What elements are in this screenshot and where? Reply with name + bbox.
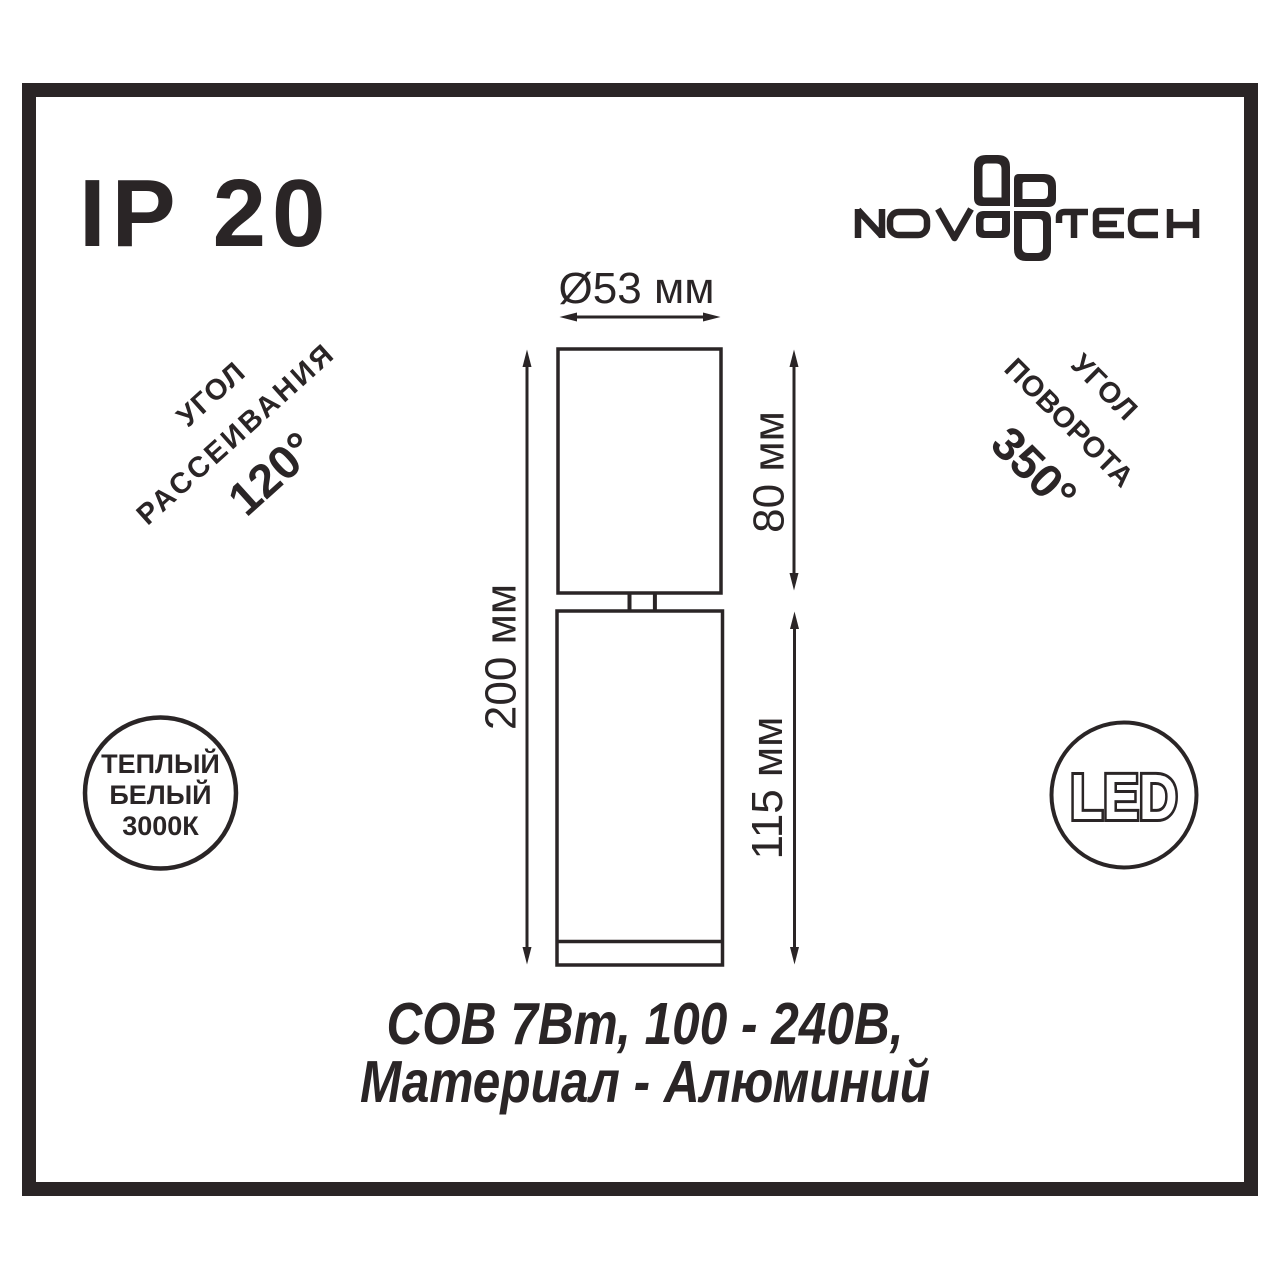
- svg-text:80 мм: 80 мм: [745, 411, 794, 533]
- svg-text:115 мм: 115 мм: [743, 717, 792, 860]
- svg-text:IP 20: IP 20: [79, 160, 331, 267]
- svg-text:3000К: 3000К: [122, 811, 199, 841]
- svg-text:СОВ 7Вт, 100 - 240В,: СОВ 7Вт, 100 - 240В,: [386, 991, 903, 1057]
- svg-text:Материал - Алюминий: Материал - Алюминий: [360, 1049, 930, 1115]
- svg-text:БЕЛЫЙ: БЕЛЫЙ: [109, 779, 211, 810]
- svg-text:ТЕПЛЫЙ: ТЕПЛЫЙ: [101, 748, 220, 779]
- svg-text:200 мм: 200 мм: [477, 584, 526, 730]
- svg-text:LED: LED: [1070, 761, 1178, 834]
- svg-text:Ø53 мм: Ø53 мм: [559, 264, 715, 313]
